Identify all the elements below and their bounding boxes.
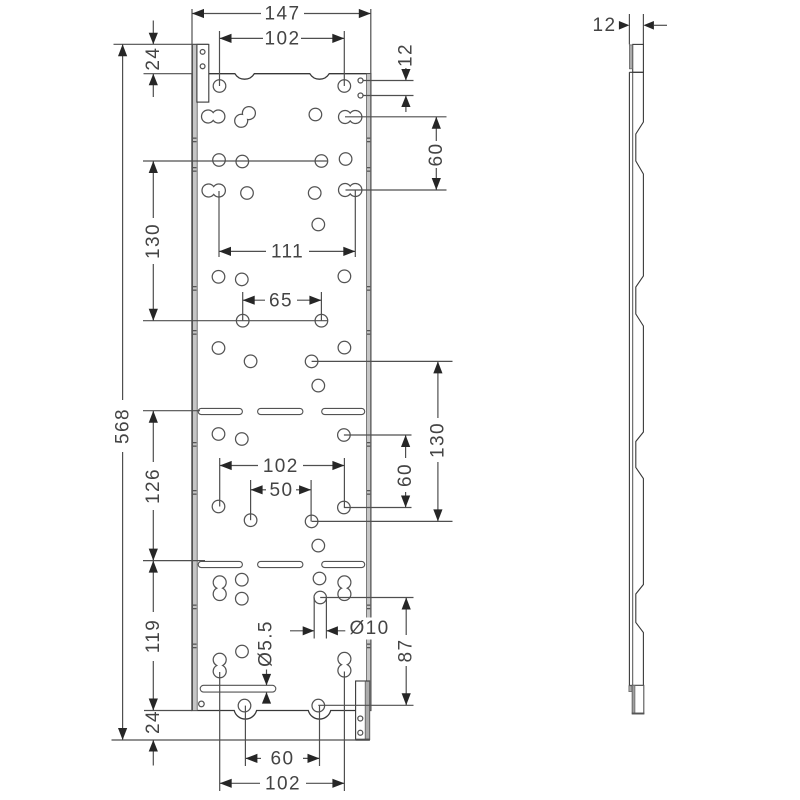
svg-text:60: 60 — [426, 143, 447, 167]
svg-text:568: 568 — [113, 408, 134, 444]
svg-text:102: 102 — [263, 456, 299, 477]
svg-text:102: 102 — [265, 774, 301, 795]
svg-text:24: 24 — [143, 710, 164, 734]
svg-text:87: 87 — [396, 639, 417, 663]
svg-text:126: 126 — [143, 468, 164, 504]
svg-text:24: 24 — [143, 47, 164, 71]
svg-text:130: 130 — [427, 422, 448, 458]
svg-text:12: 12 — [593, 15, 617, 36]
svg-text:102: 102 — [265, 29, 301, 50]
svg-text:50: 50 — [270, 480, 294, 501]
svg-text:147: 147 — [265, 4, 301, 25]
svg-text:130: 130 — [143, 223, 164, 259]
svg-text:60: 60 — [395, 463, 416, 487]
svg-text:60: 60 — [271, 749, 295, 770]
svg-text:Ø5.5: Ø5.5 — [256, 620, 277, 667]
svg-text:12: 12 — [395, 43, 416, 67]
svg-text:119: 119 — [143, 619, 164, 654]
svg-text:111: 111 — [271, 242, 304, 263]
svg-text:65: 65 — [269, 291, 293, 312]
svg-text:Ø10: Ø10 — [349, 618, 389, 639]
